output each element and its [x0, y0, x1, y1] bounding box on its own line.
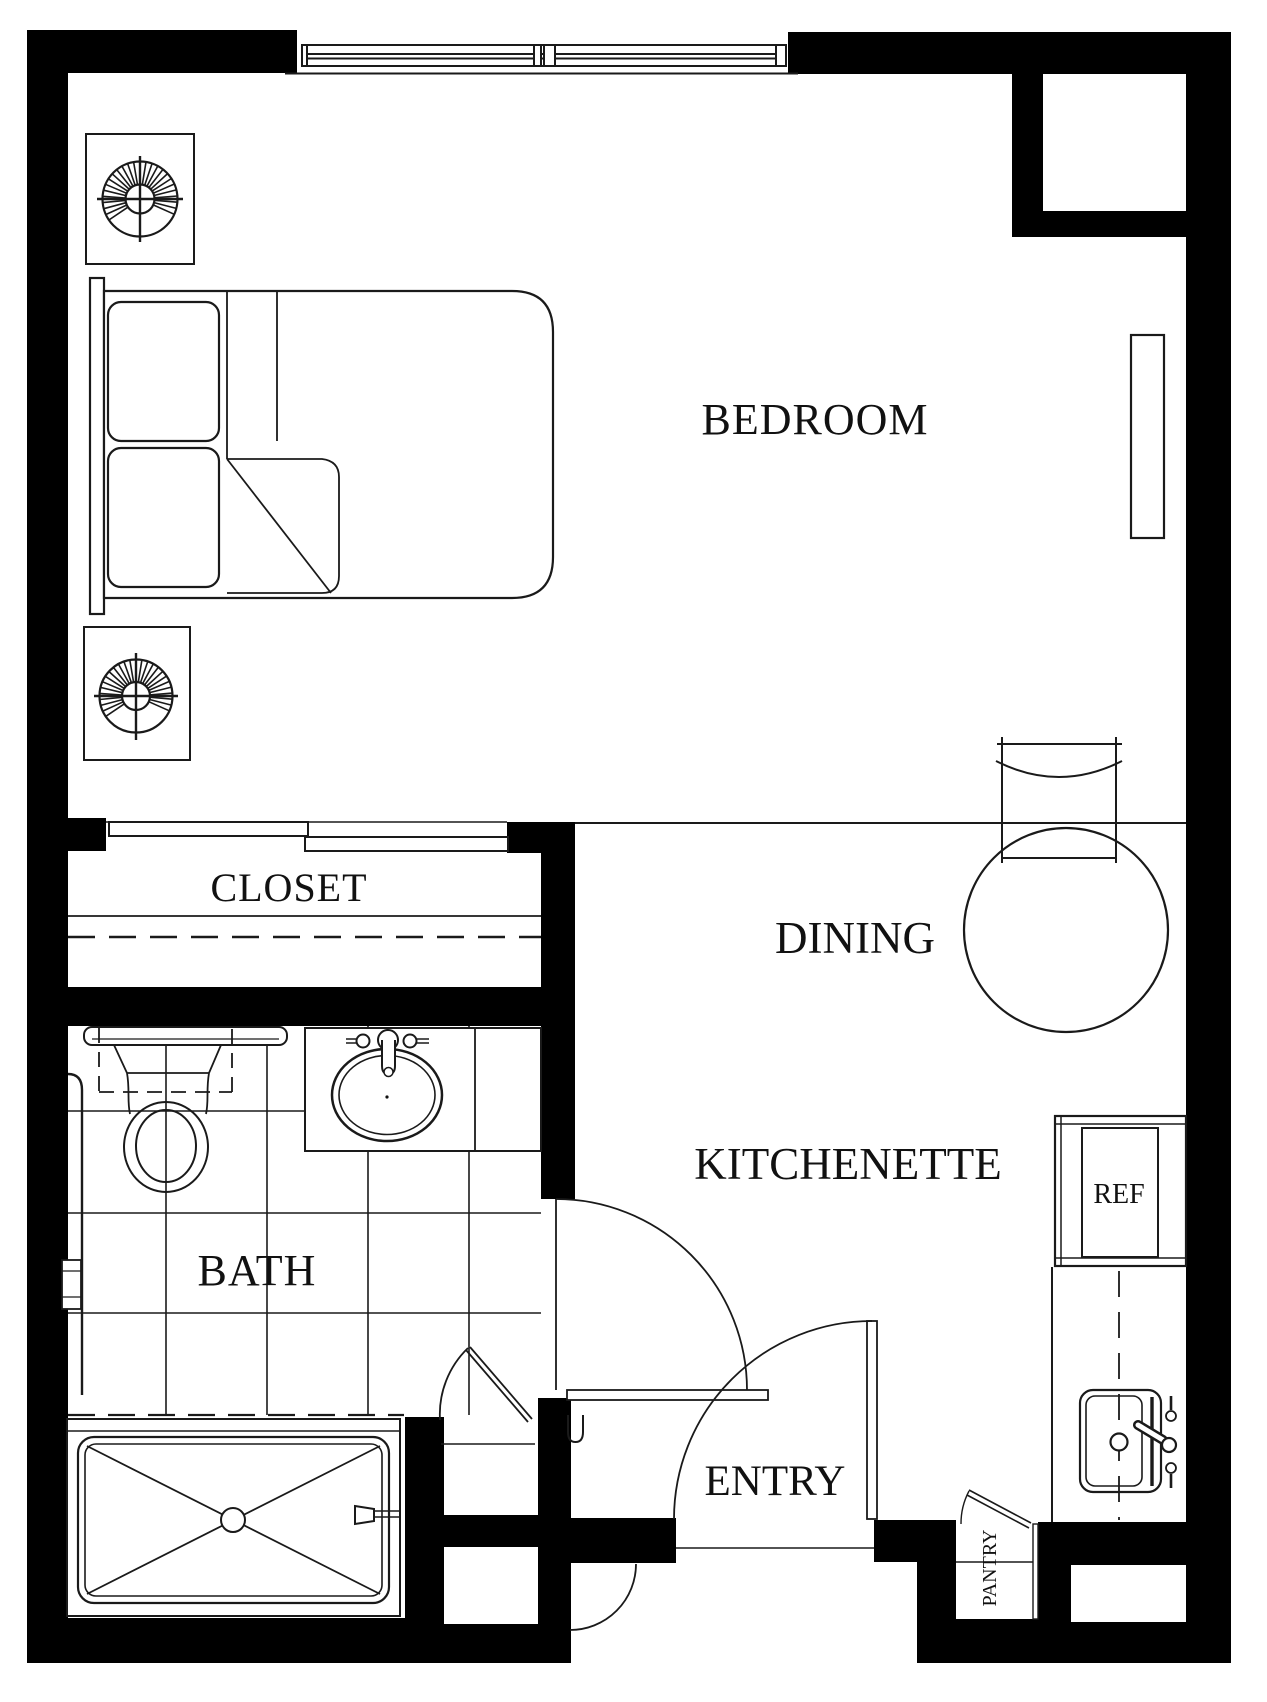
- svg-text:ENTRY: ENTRY: [705, 1458, 846, 1505]
- svg-text:REF: REF: [1093, 1179, 1144, 1210]
- svg-text:DINING: DINING: [775, 913, 935, 963]
- svg-text:PANTRY: PANTRY: [979, 1529, 1001, 1606]
- svg-text:KITCHENETTE: KITCHENETTE: [694, 1139, 1001, 1189]
- svg-text:BEDROOM: BEDROOM: [701, 395, 928, 444]
- svg-text:BATH: BATH: [198, 1246, 317, 1295]
- svg-text:CLOSET: CLOSET: [210, 865, 367, 910]
